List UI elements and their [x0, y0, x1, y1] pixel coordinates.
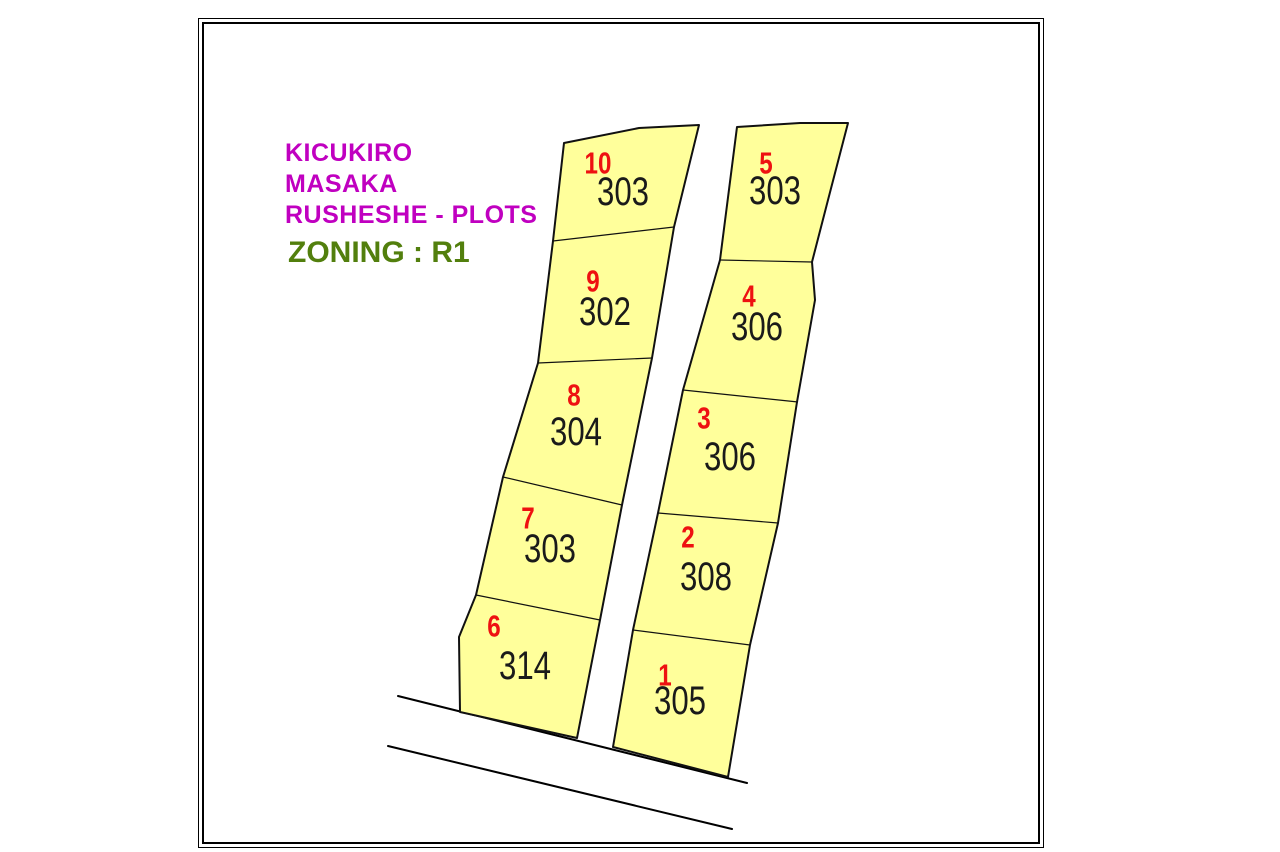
zoning-label: ZONING : R1 — [288, 237, 470, 269]
plot-area: 303 — [524, 529, 576, 569]
plot-area: 303 — [749, 171, 801, 211]
plot-number: 8 — [567, 380, 580, 411]
plot-area: 306 — [731, 307, 783, 347]
plot-area: 305 — [654, 681, 706, 721]
plot-area: 303 — [597, 172, 649, 212]
plot-number: 3 — [697, 403, 710, 434]
plot-map-page: KICUKIRO MASAKA RUSHESHE - PLOTS ZONING … — [0, 0, 1280, 852]
plot-number: 6 — [487, 611, 500, 642]
map-title-line-2: MASAKA — [285, 169, 537, 200]
plot-area: 314 — [499, 646, 551, 686]
plot-area: 302 — [579, 292, 631, 332]
plot-area: 306 — [704, 437, 756, 477]
plot-area: 308 — [680, 557, 732, 597]
plot-number: 2 — [681, 522, 694, 553]
map-title-line-3: RUSHESHE - PLOTS — [285, 200, 537, 231]
map-title-line-1: KICUKIRO — [285, 138, 537, 169]
parcel-map-drawing — [0, 0, 1280, 852]
map-title: KICUKIRO MASAKA RUSHESHE - PLOTS — [285, 138, 537, 231]
plot-area: 304 — [550, 412, 602, 452]
